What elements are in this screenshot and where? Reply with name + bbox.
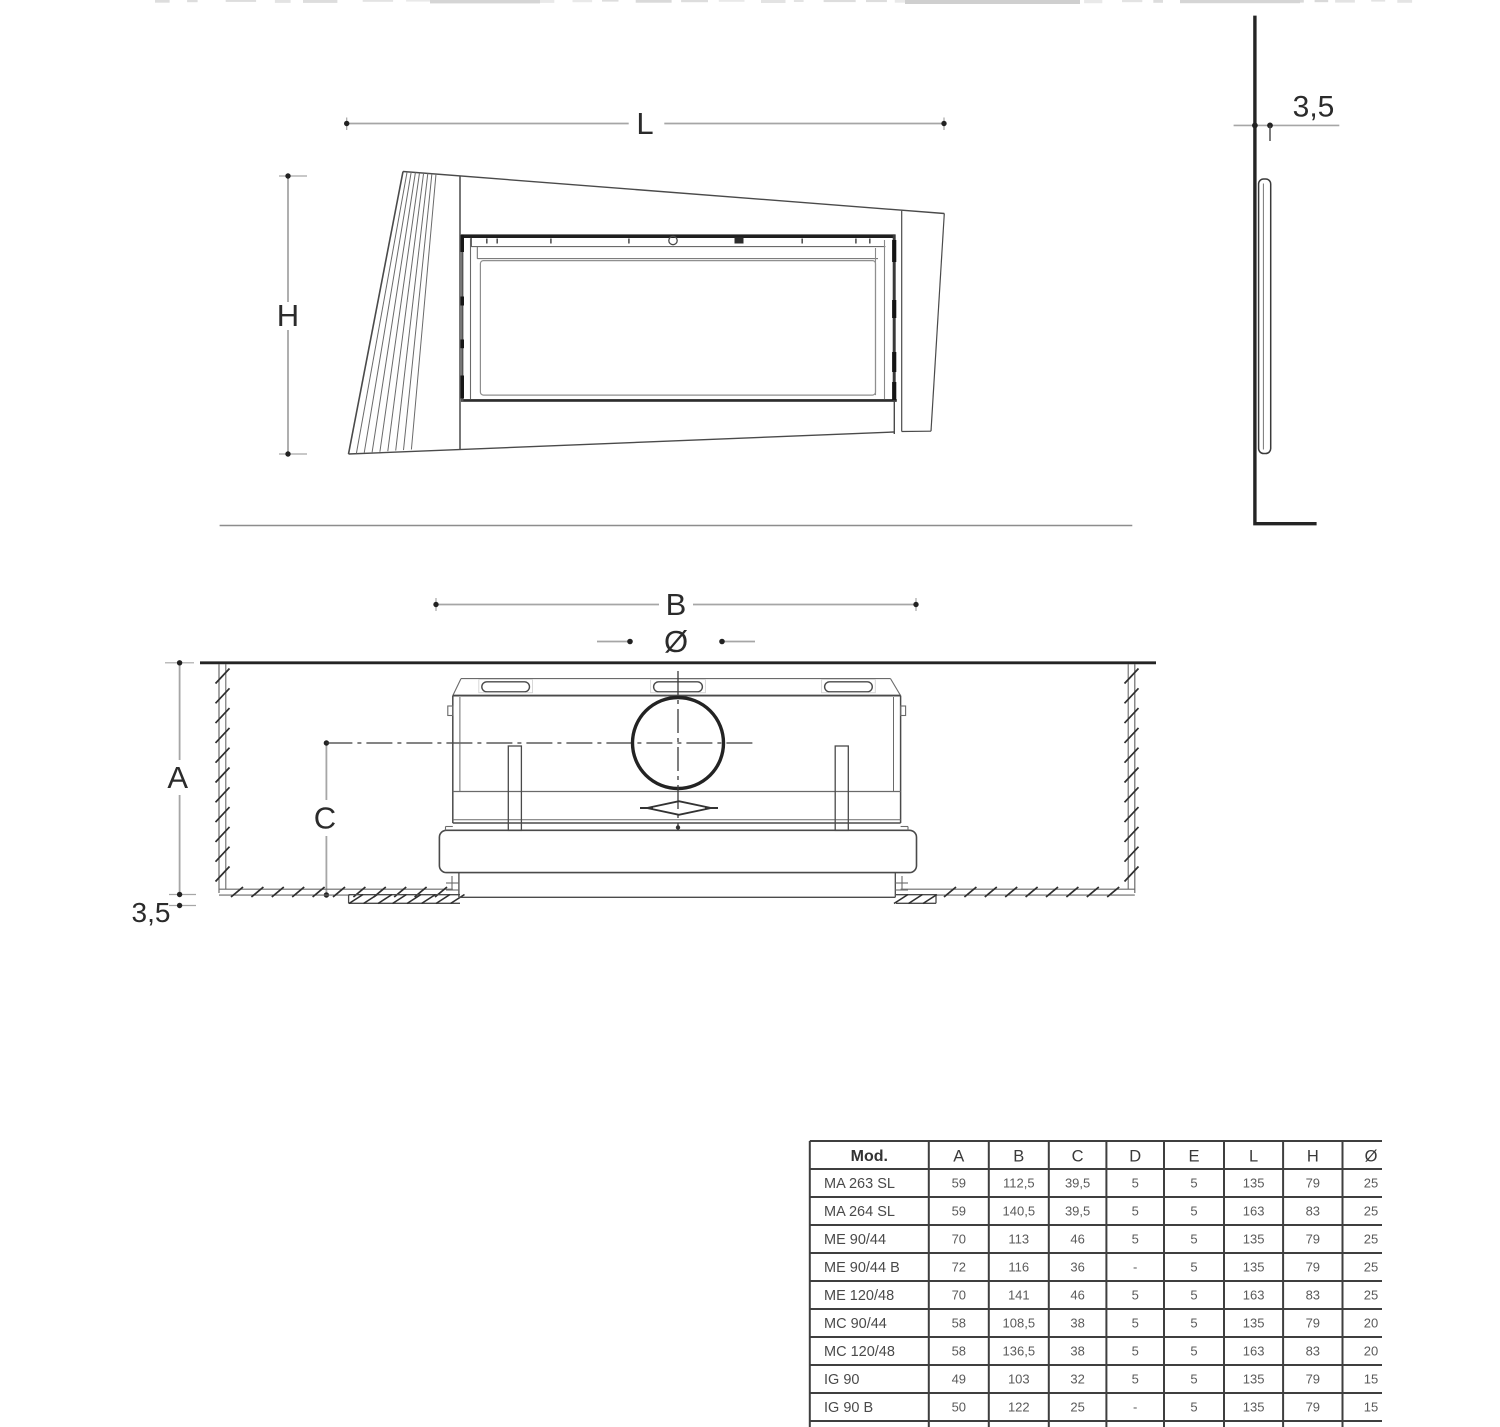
- svg-text:59: 59: [952, 1176, 966, 1191]
- svg-text:122: 122: [1008, 1400, 1030, 1415]
- svg-text:135: 135: [1243, 1232, 1265, 1247]
- svg-text:79: 79: [1306, 1372, 1320, 1387]
- svg-text:IG 90 B: IG 90 B: [824, 1400, 873, 1416]
- svg-text:5: 5: [1190, 1260, 1197, 1275]
- svg-text:163: 163: [1243, 1344, 1265, 1359]
- svg-text:32: 32: [1070, 1372, 1084, 1387]
- svg-text:5: 5: [1132, 1316, 1139, 1331]
- svg-text:141: 141: [1008, 1288, 1030, 1303]
- svg-text:25: 25: [1070, 1400, 1084, 1415]
- svg-text:79: 79: [1306, 1232, 1320, 1247]
- svg-text:83: 83: [1306, 1204, 1320, 1219]
- svg-text:3,5: 3,5: [132, 897, 171, 928]
- svg-text:ME 120/48: ME 120/48: [824, 1288, 894, 1304]
- svg-text:79: 79: [1306, 1260, 1320, 1275]
- svg-text:C: C: [1072, 1148, 1084, 1166]
- svg-text:136,5: 136,5: [1003, 1344, 1036, 1359]
- svg-text:5: 5: [1132, 1288, 1139, 1303]
- svg-text:ME 90/44: ME 90/44: [824, 1232, 886, 1248]
- svg-text:50: 50: [952, 1400, 966, 1415]
- svg-text:39,5: 39,5: [1065, 1204, 1090, 1219]
- svg-text:5: 5: [1132, 1204, 1139, 1219]
- svg-text:Ø: Ø: [664, 624, 688, 659]
- svg-text:38: 38: [1070, 1344, 1084, 1359]
- svg-text:20: 20: [1364, 1344, 1378, 1359]
- svg-text:ME 90/44 B: ME 90/44 B: [824, 1260, 900, 1276]
- svg-text:39,5: 39,5: [1065, 1176, 1090, 1191]
- svg-text:38: 38: [1070, 1316, 1084, 1331]
- svg-text:5: 5: [1132, 1176, 1139, 1191]
- svg-text:49: 49: [952, 1372, 966, 1387]
- svg-text:135: 135: [1243, 1372, 1265, 1387]
- svg-text:25: 25: [1364, 1260, 1378, 1275]
- svg-text:5: 5: [1190, 1372, 1197, 1387]
- svg-text:103: 103: [1008, 1372, 1030, 1387]
- svg-text:5: 5: [1132, 1232, 1139, 1247]
- svg-text:Ø: Ø: [1365, 1148, 1378, 1166]
- svg-text:70: 70: [952, 1232, 966, 1247]
- svg-text:79: 79: [1306, 1176, 1320, 1191]
- svg-text:135: 135: [1243, 1400, 1265, 1415]
- svg-text:5: 5: [1190, 1176, 1197, 1191]
- svg-text:79: 79: [1306, 1400, 1320, 1415]
- svg-text:25: 25: [1364, 1232, 1378, 1247]
- svg-text:36: 36: [1070, 1260, 1084, 1275]
- svg-text:112,5: 112,5: [1003, 1176, 1035, 1191]
- svg-text:58: 58: [952, 1344, 966, 1359]
- svg-text:163: 163: [1243, 1204, 1265, 1219]
- svg-text:5: 5: [1190, 1344, 1197, 1359]
- svg-text:5: 5: [1190, 1400, 1197, 1415]
- svg-text:E: E: [1188, 1148, 1199, 1166]
- svg-text:135: 135: [1243, 1260, 1265, 1275]
- svg-text:A: A: [167, 760, 188, 795]
- svg-text:25: 25: [1364, 1204, 1378, 1219]
- svg-text:5: 5: [1132, 1372, 1139, 1387]
- svg-text:MA 263 SL: MA 263 SL: [824, 1176, 895, 1192]
- svg-text:70: 70: [952, 1288, 966, 1303]
- svg-text:25: 25: [1364, 1288, 1378, 1303]
- svg-text:5: 5: [1132, 1344, 1139, 1359]
- svg-text:5: 5: [1190, 1232, 1197, 1247]
- svg-text:B: B: [1013, 1148, 1024, 1166]
- svg-text:IG 90: IG 90: [824, 1372, 859, 1388]
- svg-text:D: D: [1129, 1148, 1141, 1166]
- svg-text:46: 46: [1070, 1288, 1084, 1303]
- svg-text:83: 83: [1306, 1288, 1320, 1303]
- svg-text:72: 72: [952, 1260, 966, 1275]
- svg-text:3,5: 3,5: [1293, 91, 1335, 124]
- svg-text:113: 113: [1008, 1232, 1029, 1247]
- svg-text:116: 116: [1008, 1260, 1029, 1275]
- svg-text:58: 58: [952, 1316, 966, 1331]
- svg-text:83: 83: [1306, 1344, 1320, 1359]
- svg-text:-: -: [1133, 1260, 1137, 1275]
- svg-text:5: 5: [1190, 1316, 1197, 1331]
- svg-text:15: 15: [1364, 1372, 1378, 1387]
- svg-text:5: 5: [1190, 1288, 1197, 1303]
- svg-text:5: 5: [1190, 1204, 1197, 1219]
- svg-text:MC 120/48: MC 120/48: [824, 1344, 895, 1360]
- svg-text:20: 20: [1364, 1316, 1378, 1331]
- svg-text:-: -: [1133, 1400, 1137, 1415]
- svg-text:L: L: [636, 106, 653, 141]
- svg-text:15: 15: [1364, 1400, 1378, 1415]
- svg-text:MC 90/44: MC 90/44: [824, 1316, 887, 1332]
- svg-text:46: 46: [1070, 1232, 1084, 1247]
- svg-text:135: 135: [1243, 1316, 1265, 1331]
- svg-text:MA 264 SL: MA 264 SL: [824, 1204, 895, 1220]
- svg-text:H: H: [1307, 1148, 1319, 1166]
- svg-text:79: 79: [1306, 1316, 1320, 1331]
- svg-text:H: H: [277, 298, 299, 333]
- svg-text:Mod.: Mod.: [851, 1148, 888, 1165]
- svg-text:59: 59: [952, 1204, 966, 1219]
- svg-text:140,5: 140,5: [1003, 1204, 1036, 1219]
- svg-text:135: 135: [1243, 1176, 1265, 1191]
- svg-text:C: C: [314, 801, 336, 836]
- svg-text:A: A: [953, 1148, 964, 1166]
- svg-text:L: L: [1249, 1148, 1258, 1166]
- svg-text:108,5: 108,5: [1003, 1316, 1036, 1331]
- svg-text:B: B: [666, 587, 687, 622]
- svg-text:163: 163: [1243, 1288, 1265, 1303]
- svg-text:25: 25: [1364, 1176, 1378, 1191]
